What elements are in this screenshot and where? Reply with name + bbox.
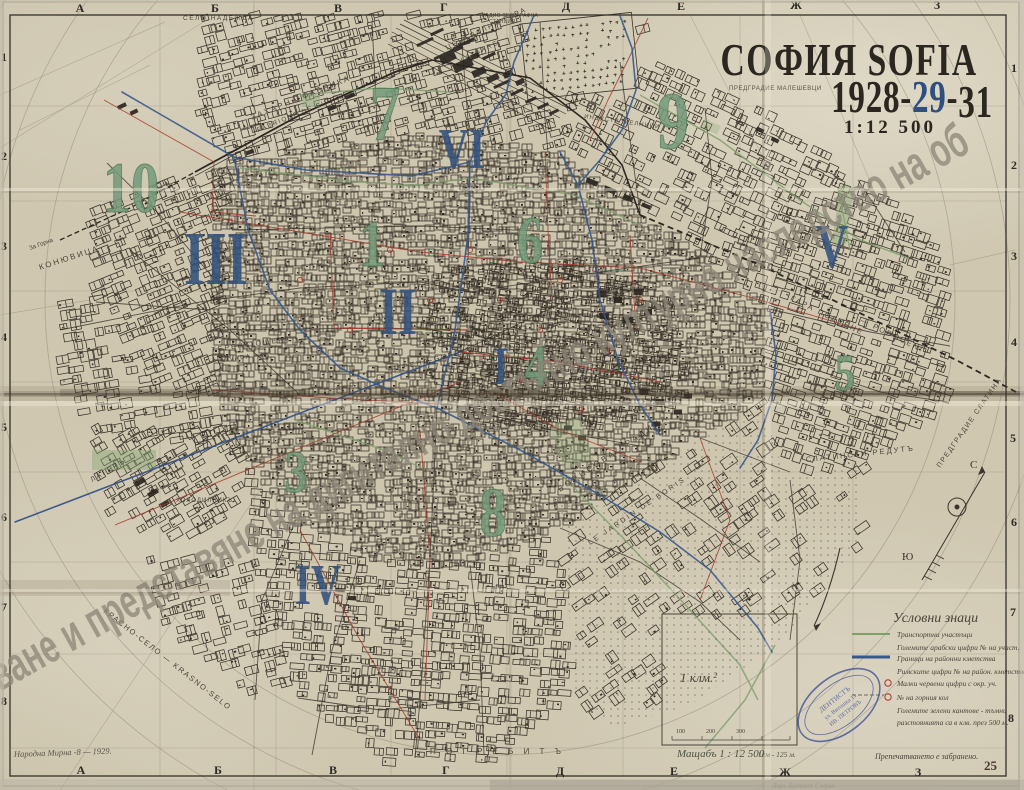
- svg-text:Условни знаци: Условни знаци: [893, 611, 978, 626]
- svg-text:Б: Б: [211, 1, 219, 15]
- svg-text:Ю: Ю: [902, 551, 913, 563]
- svg-text:8: 8: [479, 474, 506, 552]
- svg-text:4: 4: [1011, 335, 1017, 349]
- svg-text:ХОЛОДИЛНИКЪ: ХОЛОДИЛНИКЪ: [176, 498, 233, 504]
- svg-text:Малки червени цифри с окр. уч: Малки червени цифри с окр. уч.: [896, 679, 997, 688]
- svg-text:III: III: [184, 217, 248, 301]
- svg-text:1: 1: [1011, 61, 1017, 75]
- svg-text:6: 6: [517, 204, 544, 279]
- svg-text:А: А: [76, 1, 85, 15]
- svg-text:№ на горния кол: № на горния кол: [896, 693, 949, 702]
- svg-text:Ж: Ж: [779, 765, 791, 779]
- svg-text:разстоянията са в клв. през 50: разстоянията са в клв. през 500 м.: [896, 718, 1009, 727]
- svg-text:ПРЕДГРАДИЕ МАЛЕШЕВЦИ: ПРЕДГРАДИЕ МАЛЕШЕВЦИ: [729, 86, 822, 92]
- svg-text:10: 10: [103, 147, 159, 227]
- svg-text:Транспортни участъци: Транспортни участъци: [897, 630, 972, 639]
- svg-text:Мащабъ 1 : 12 500: Мащабъ 1 : 12 500: [676, 748, 765, 760]
- svg-text:Римските цифри № на район. кме: Римските цифри № на район. кметство: [896, 667, 1024, 676]
- svg-text:З: З: [915, 765, 921, 779]
- svg-text:А: А: [77, 763, 86, 777]
- svg-text:II: II: [379, 273, 417, 349]
- svg-text:В: В: [329, 763, 337, 777]
- svg-text:Големите арабски цифри № на уч: Големите арабски цифри № на участ.: [896, 643, 1020, 652]
- svg-text:7: 7: [1010, 605, 1016, 619]
- svg-text:200: 200: [706, 729, 715, 735]
- svg-text:1: 1: [359, 207, 385, 281]
- svg-text:IV: IV: [295, 552, 341, 616]
- svg-text:7: 7: [370, 72, 400, 158]
- svg-text:Препечатването е забранено.: Препечатването е забранено.: [874, 752, 978, 761]
- svg-text:П О Г Р Е Б И Т Ъ: П О Г Р Е Б И Т Ъ: [430, 747, 565, 756]
- svg-text:3: 3: [1011, 249, 1017, 263]
- svg-text:Граници на районни кметства: Граници на районни кметства: [896, 654, 996, 663]
- svg-text:100: 100: [676, 729, 685, 735]
- svg-text:2: 2: [1011, 158, 1017, 172]
- svg-text:300: 300: [736, 729, 745, 735]
- svg-text:6: 6: [1011, 515, 1017, 529]
- svg-text:5: 5: [1010, 431, 1016, 445]
- svg-text:Големите зелени кантове - тъмн: Големите зелени кантове - тъмни: [896, 706, 1007, 715]
- svg-text:В: В: [334, 1, 342, 15]
- svg-text:Б: Б: [214, 763, 222, 777]
- svg-text:1 клм.2: 1 клм.2: [680, 670, 717, 685]
- svg-text:Г: Г: [442, 763, 450, 777]
- svg-text:VI: VI: [439, 116, 485, 180]
- svg-text:25: 25: [984, 758, 998, 773]
- svg-text:С: С: [970, 459, 977, 471]
- svg-text:9: 9: [657, 74, 689, 165]
- svg-text:СЕЛО НАДЕЖДА: СЕЛО НАДЕЖДА: [183, 15, 254, 22]
- svg-text:8: 8: [1008, 711, 1014, 725]
